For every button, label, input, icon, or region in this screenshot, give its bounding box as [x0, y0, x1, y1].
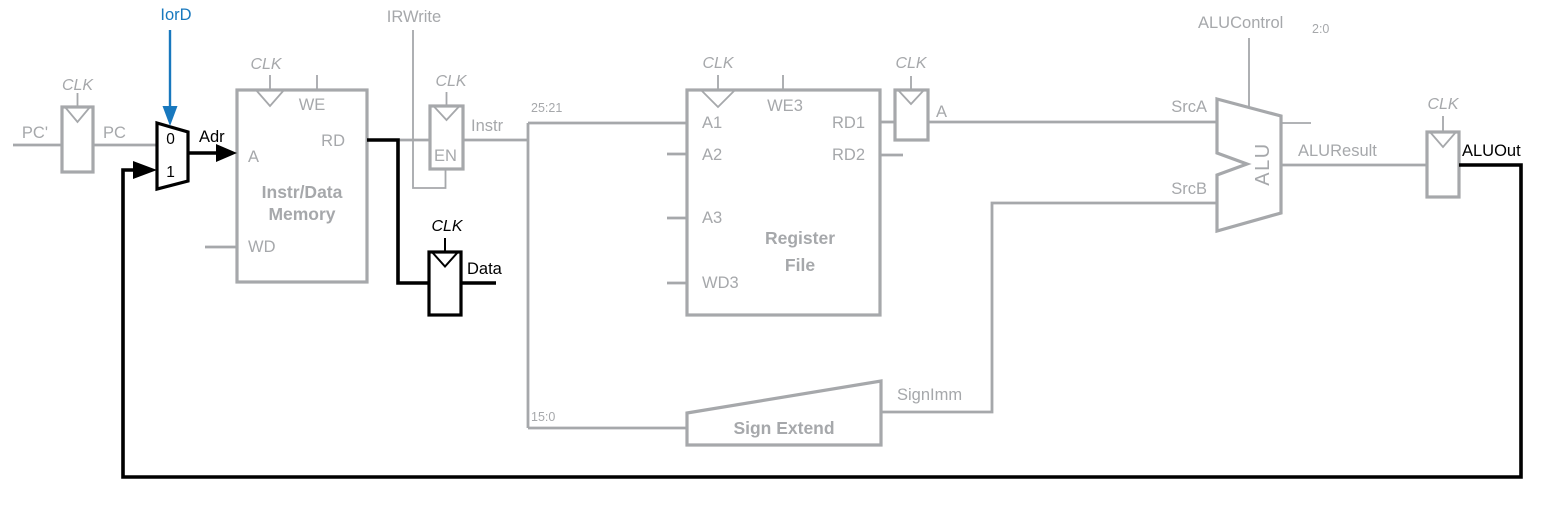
iord-label: IorD — [160, 6, 191, 24]
data-label: Data — [467, 260, 503, 278]
rd-to-data-wire — [367, 140, 429, 283]
pc-label: PC — [103, 124, 126, 142]
ir-en-port: EN — [434, 147, 457, 165]
memory-title-line1: Instr/Data — [262, 182, 343, 202]
rf-clk-label: CLK — [702, 55, 734, 72]
rf-rd2-port: RD2 — [832, 146, 865, 164]
instr-data-memory-group: CLK WE A RD WD Instr/Data Memory — [205, 56, 367, 282]
sign-extend-title: Sign Extend — [733, 418, 834, 438]
srcb-label: SrcB — [1171, 180, 1207, 198]
iord-arrowhead-icon — [163, 106, 178, 126]
register-file-group: CLK WE3 A1 A2 A3 WD3 RD1 RD2 Register Fi… — [667, 55, 903, 315]
alu-title: ALU — [1252, 142, 1274, 185]
a-reg-clk-label: CLK — [895, 55, 927, 72]
irwrite-label: IRWrite — [387, 8, 441, 26]
adr-arrowhead-icon — [216, 144, 237, 162]
aluresult-label: ALUResult — [1298, 142, 1377, 160]
field-15-0-label: 15:0 — [531, 410, 555, 424]
adr-label: Adr — [199, 128, 225, 146]
memory-title-line2: Memory — [268, 204, 335, 224]
instr-label: Instr — [471, 117, 504, 135]
memory-clk-label: CLK — [250, 56, 282, 73]
pc-clk-label: CLK — [62, 77, 94, 94]
data-clk-label: CLK — [431, 218, 463, 235]
pc-prime-label: PC' — [22, 124, 48, 142]
memory-we-port: WE — [299, 96, 326, 114]
signimm-label: SignImm — [897, 386, 962, 404]
alucontrol-label: ALUControl — [1198, 14, 1283, 32]
rf-we3-port: WE3 — [767, 97, 803, 115]
data-register — [429, 252, 461, 315]
a-register — [895, 90, 928, 140]
srca-label: SrcA — [1171, 98, 1207, 116]
rf-a3-port: A3 — [702, 209, 722, 227]
rf-wd3-port: WD3 — [702, 274, 739, 292]
mux-input1-label: 1 — [166, 164, 175, 181]
pc-register-group: CLK PC' PC — [13, 77, 157, 172]
aluout-clk-label: CLK — [1427, 96, 1459, 113]
memory-rd-port: RD — [321, 132, 345, 150]
pc-register — [62, 107, 93, 172]
datapath-svg: CLK PC' PC CLK WE A RD WD Instr/Data Mem… — [0, 0, 1546, 505]
rf-a2-port: A2 — [702, 146, 722, 164]
instr-register-group: IRWrite CLK EN Instr — [387, 8, 528, 188]
rf-a1-port: A1 — [702, 114, 722, 132]
a-register-group: CLK A — [880, 55, 1217, 140]
rf-title-line1: Register — [765, 228, 835, 248]
iord-mux-group: 0 1 Adr — [157, 123, 237, 189]
aluout-label: ALUOut — [1462, 142, 1521, 160]
rf-title-line2: File — [785, 255, 815, 275]
datapath-diagram: CLK PC' PC CLK WE A RD WD Instr/Data Mem… — [0, 0, 1546, 505]
mux-input1-arrowhead-icon — [133, 161, 157, 179]
mux-input0-label: 0 — [166, 131, 175, 148]
ir-clk-label: CLK — [435, 73, 467, 90]
alucontrol-subscript: 2:0 — [1312, 22, 1329, 36]
a-signal-label: A — [936, 103, 947, 121]
memory-a-port: A — [248, 148, 259, 166]
field-25-21-label: 25:21 — [531, 101, 562, 115]
aluout-register — [1427, 132, 1459, 197]
signimm-srcb-wire — [881, 203, 1217, 412]
instr-bus-group: 25:21 15:0 — [528, 101, 687, 428]
iord-control-group: IorD — [160, 6, 191, 126]
rf-rd1-port: RD1 — [832, 114, 865, 132]
memory-wd-port: WD — [248, 238, 276, 256]
aluout-register-group: CLK — [1427, 96, 1460, 197]
